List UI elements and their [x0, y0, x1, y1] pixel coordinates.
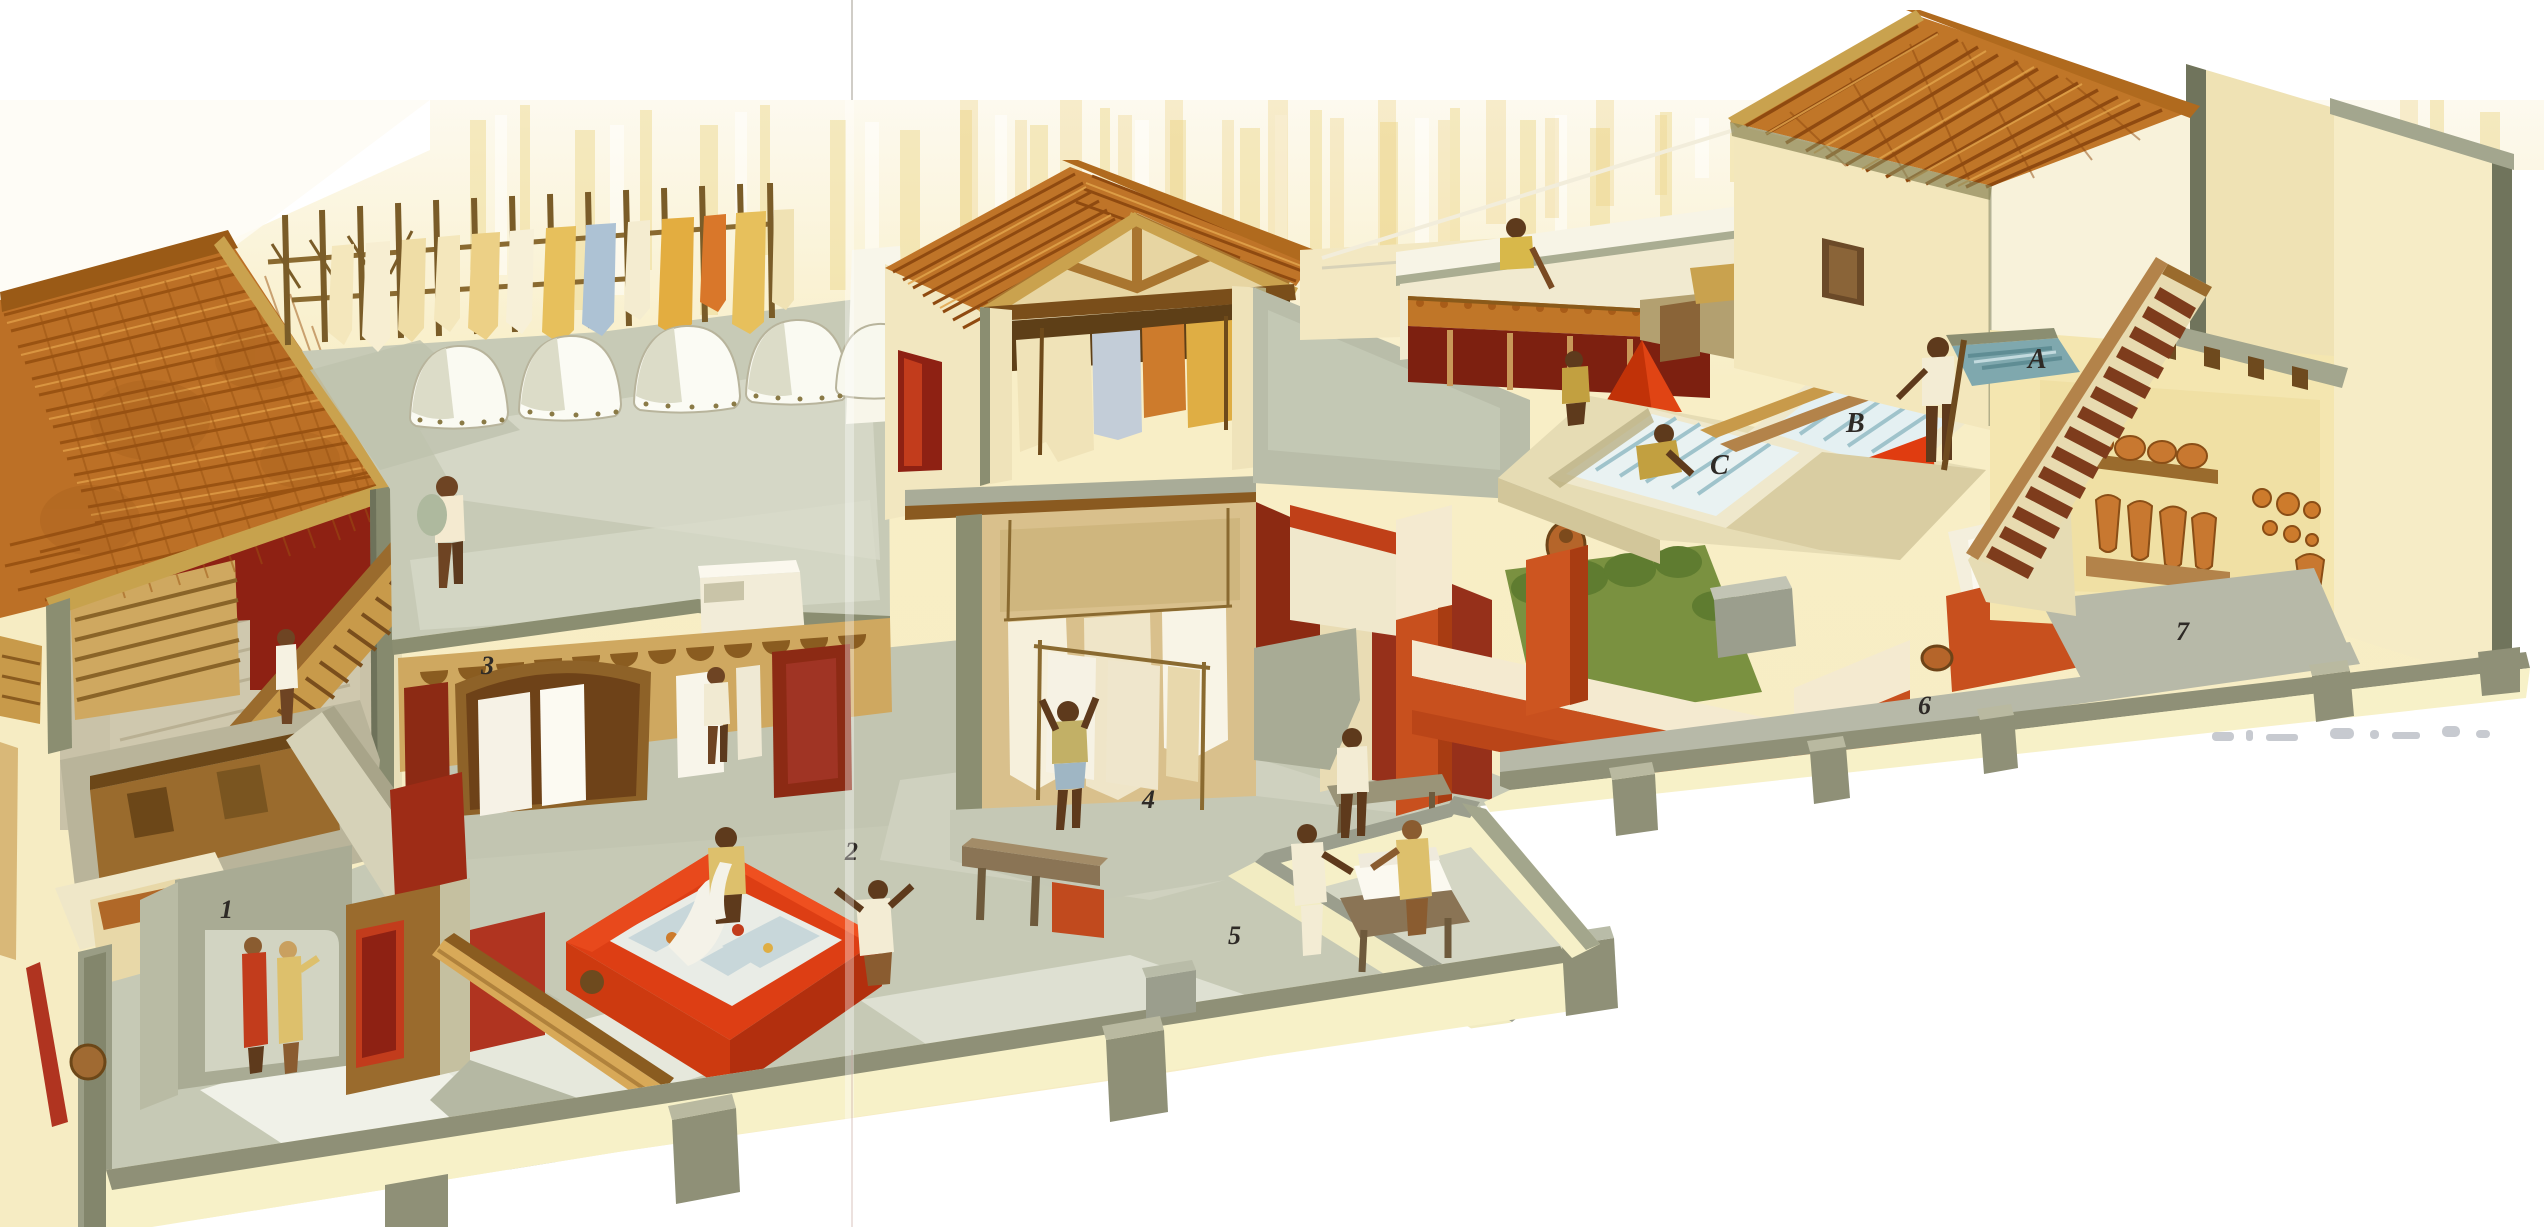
svg-text:A: A [2026, 344, 2047, 375]
svg-text:7: 7 [2176, 617, 2190, 646]
svg-text:6: 6 [1918, 691, 1931, 720]
svg-text:4: 4 [1141, 785, 1155, 814]
svg-text:B: B [1845, 408, 1865, 439]
svg-text:3: 3 [480, 651, 494, 680]
svg-text:5: 5 [1228, 921, 1241, 950]
svg-text:C: C [1710, 450, 1729, 481]
svg-text:1: 1 [220, 895, 233, 924]
